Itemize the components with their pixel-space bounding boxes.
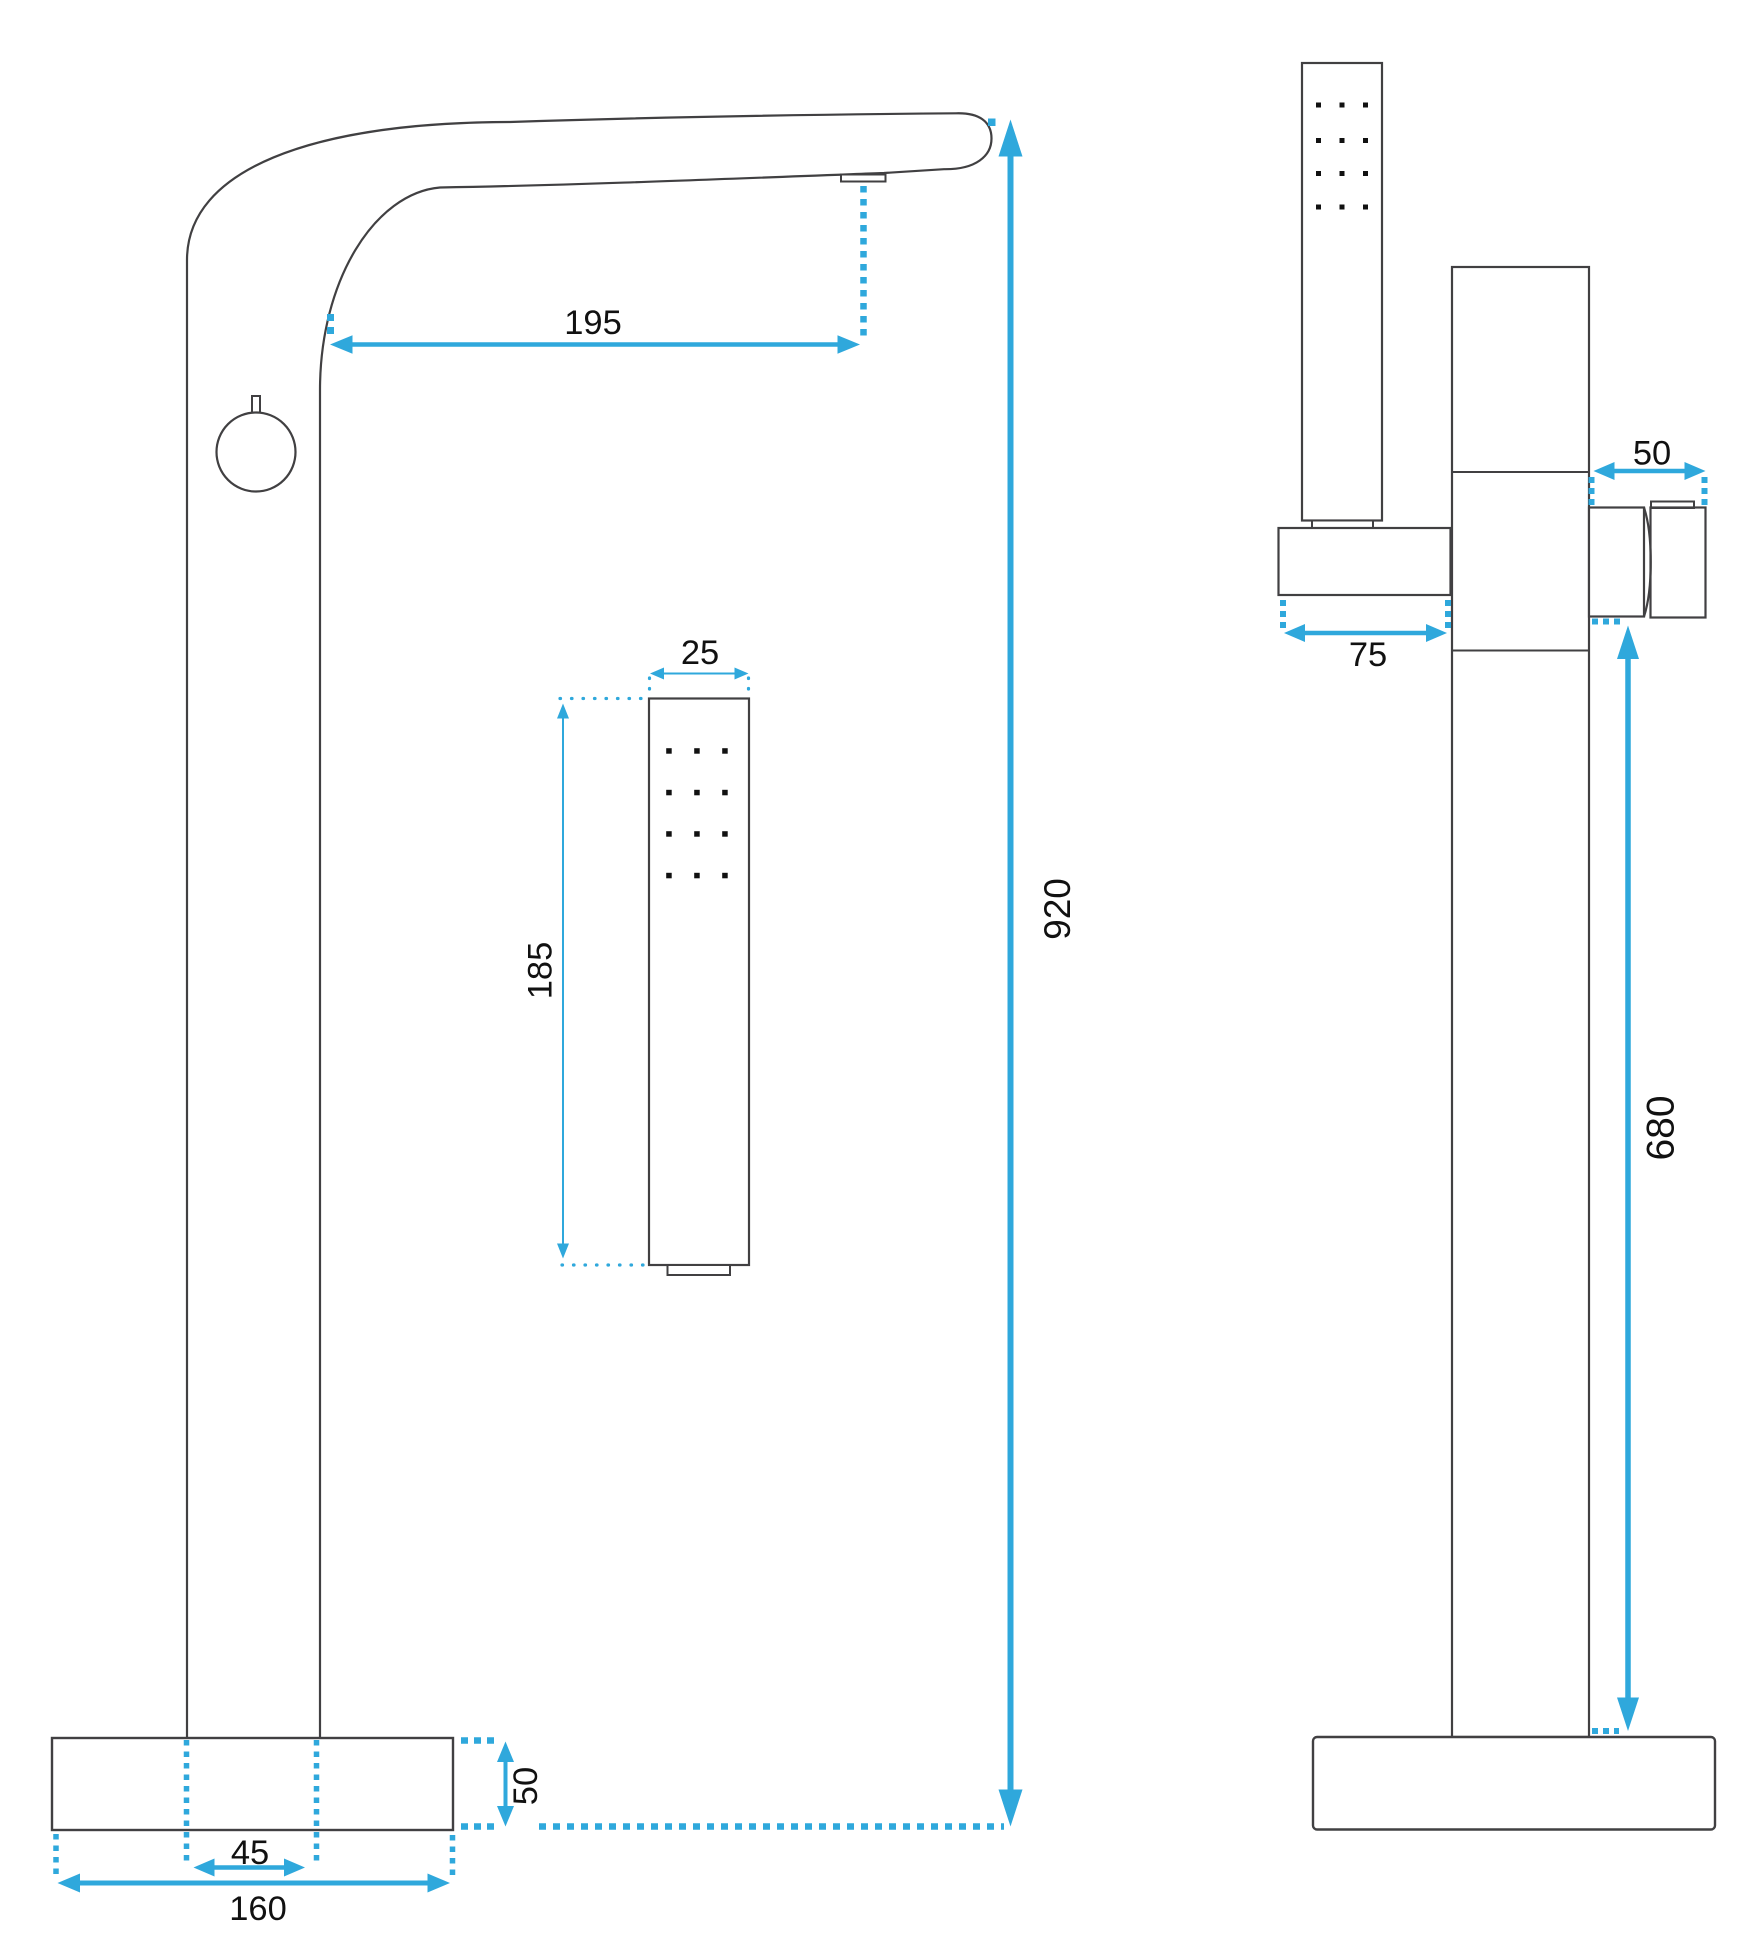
svg-text:45: 45 xyxy=(231,1834,269,1872)
svg-text:185: 185 xyxy=(522,942,560,1000)
svg-text:680: 680 xyxy=(1639,1095,1682,1160)
svg-text:195: 195 xyxy=(564,304,622,342)
svg-text:25: 25 xyxy=(681,634,719,672)
svg-text:75: 75 xyxy=(1349,636,1387,674)
svg-text:160: 160 xyxy=(229,1890,287,1928)
svg-text:50: 50 xyxy=(1633,435,1671,473)
svg-text:920: 920 xyxy=(1037,878,1078,940)
svg-text:50: 50 xyxy=(507,1767,545,1805)
